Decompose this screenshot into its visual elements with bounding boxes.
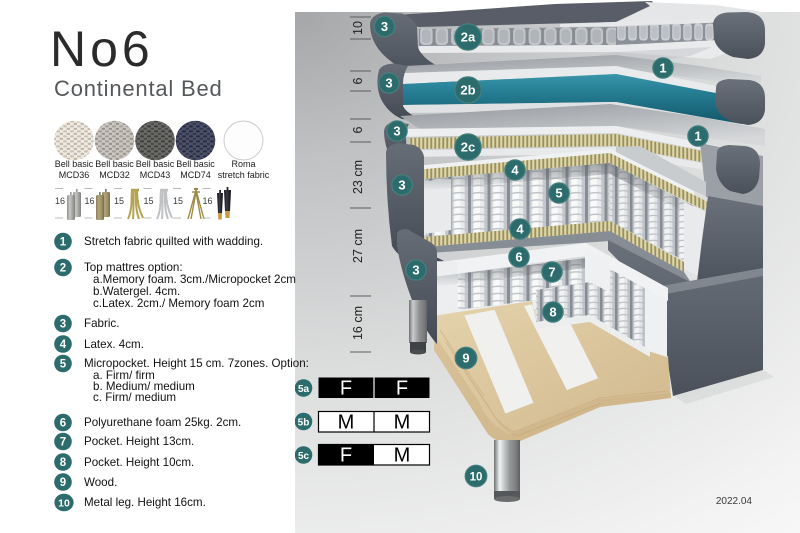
svg-text:2c: 2c bbox=[461, 140, 475, 155]
svg-text:4: 4 bbox=[511, 163, 519, 178]
svg-text:4: 4 bbox=[516, 222, 524, 237]
svg-text:5: 5 bbox=[555, 186, 562, 201]
svg-text:7: 7 bbox=[548, 265, 555, 280]
svg-text:8: 8 bbox=[549, 305, 556, 320]
svg-text:9: 9 bbox=[462, 351, 469, 366]
svg-text:2022.04: 2022.04 bbox=[716, 496, 753, 507]
svg-text:2a: 2a bbox=[461, 30, 476, 45]
svg-text:1: 1 bbox=[659, 61, 666, 76]
svg-text:6: 6 bbox=[515, 250, 522, 265]
svg-text:1: 1 bbox=[694, 129, 701, 144]
svg-text:2b: 2b bbox=[460, 83, 475, 98]
svg-text:10: 10 bbox=[470, 472, 483, 484]
